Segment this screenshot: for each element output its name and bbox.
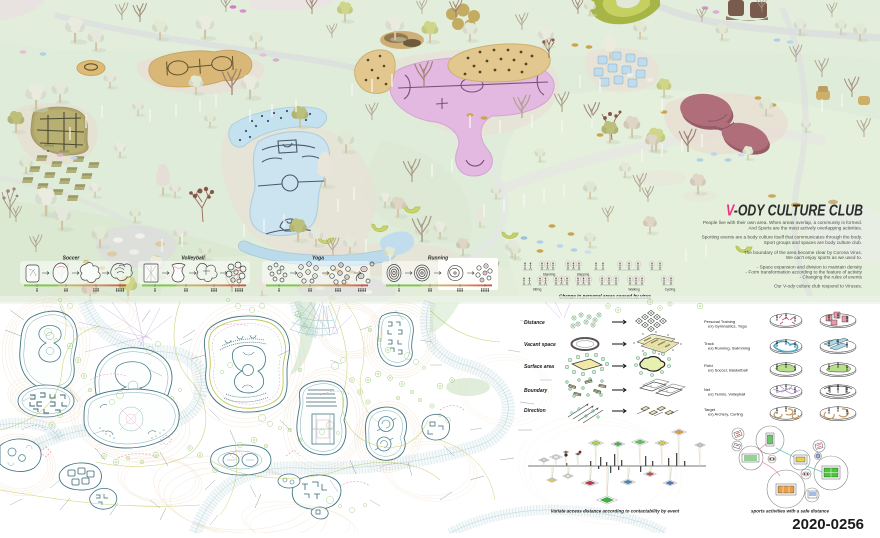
svg-text:Direction: Direction <box>524 408 546 414</box>
svg-text:Vacant space: Vacant space <box>524 342 556 348</box>
svg-text:People live with their own are: People live with their own area. When ar… <box>703 220 862 225</box>
svg-text:Sport groups and spaces are bo: Sport groups and spaces are body culture… <box>764 240 862 245</box>
svg-text:Cycling: Cycling <box>665 288 676 292</box>
svg-text:Distance: Distance <box>524 320 545 326</box>
svg-text:sports activities with a safe: sports activities with a safe distance <box>751 509 830 514</box>
svg-text:And Sports are the most active: And Sports are the most actively overlap… <box>748 226 862 231</box>
svg-text:We can't enjoy sports as we us: We can't enjoy sports as we used to. <box>786 255 862 260</box>
svg-text:Soccer: Soccer <box>63 256 81 262</box>
svg-text:V-ODY CULTURE CLUB: V-ODY CULTURE CLUB <box>726 203 863 220</box>
svg-text:Volleyball: Volleyball <box>181 256 205 262</box>
svg-text:ex) Running, Swimming: ex) Running, Swimming <box>708 346 750 351</box>
svg-text:ex) Soccer, Basketball: ex) Soccer, Basketball <box>708 368 748 373</box>
svg-text:Our V-ody culture club respond: Our V-ody culture club respond to Viruse… <box>774 284 862 289</box>
svg-text:Yoga: Yoga <box>312 256 324 262</box>
svg-text:Walking: Walking <box>628 288 639 292</box>
svg-text:Sporting events are a body cul: Sporting events are a body culture itsel… <box>702 235 862 240</box>
svg-text:ex) Archery, Curling: ex) Archery, Curling <box>708 412 743 417</box>
svg-text:Boundary: Boundary <box>524 388 548 394</box>
svg-text:Surface area: Surface area <box>524 364 554 370</box>
svg-text:2020-0256: 2020-0256 <box>792 516 864 533</box>
svg-text:- Changing the rules of event: - Changing the rules of events <box>799 275 862 280</box>
svg-text:Running: Running <box>428 256 448 262</box>
svg-text:Variate access distance accor: Variate access distance according to con… <box>551 509 680 514</box>
svg-text:ex) Gymnastics, Yoga: ex) Gymnastics, Yoga <box>708 324 747 329</box>
svg-text:Sitting: Sitting <box>533 288 542 292</box>
svg-text:ex) Tennis, Volleyball: ex) Tennis, Volleyball <box>708 392 745 397</box>
